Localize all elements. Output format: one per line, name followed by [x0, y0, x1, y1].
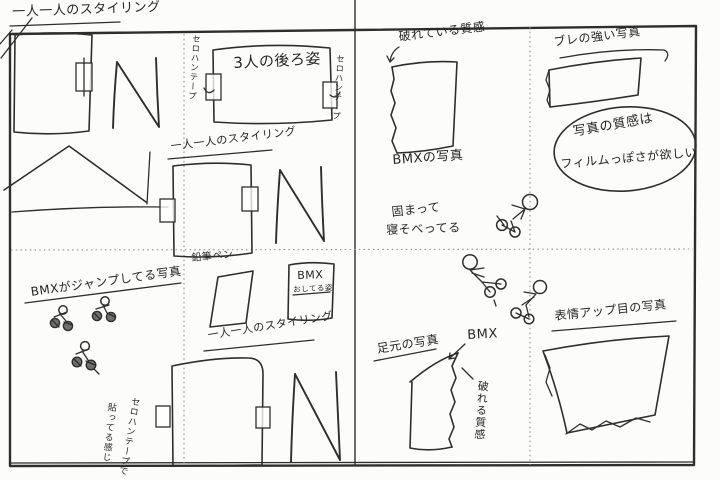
tape-mark: [242, 187, 258, 211]
tape-mark: [156, 406, 170, 427]
quadrant-top-left: [0, 18, 168, 212]
face-caption-underline: [552, 321, 676, 331]
bmx-pose-title: BMX: [297, 269, 324, 283]
quadrant-top-right: [387, 47, 457, 153]
fold-guide-horizontal: [11, 249, 693, 250]
tape-mark: [160, 199, 175, 222]
bmx-pointer-label: BMX: [467, 327, 498, 344]
letter-n-sketch-1: [113, 58, 159, 128]
blur-caption-underline: [560, 50, 668, 61]
letter-n-sketch-3: [291, 372, 340, 462]
quadrant-mid-center: [160, 150, 334, 327]
spread-frame: [10, 0, 696, 466]
stick-figure-bmx-dense: [50, 306, 72, 331]
tape-mark: [76, 58, 92, 96]
tape-mark: [256, 407, 270, 428]
photo-box-hatched-2: [173, 163, 252, 257]
photo-box-blur: [546, 58, 641, 107]
stick-figure-bmx-dense: [92, 297, 115, 322]
photo-box-bmx-torn: [391, 62, 457, 153]
tape-mark: [204, 74, 221, 100]
stick-figure-bmx-open: [511, 281, 547, 324]
stick-figure-bmx-open: [463, 255, 506, 306]
huddle-note-line2: 寝そべってる: [386, 221, 461, 237]
arrow-to-torn-texture: [462, 368, 473, 379]
stick-figure-bmx-open: [497, 195, 538, 238]
mountain-triangle-sketch: [4, 146, 168, 212]
corner-strike-lines: [0, 18, 32, 58]
letter-n-sketch-2: [276, 167, 324, 243]
photo-box-feet-torn: [374, 349, 473, 450]
photo-box-hatched-3: [172, 358, 263, 466]
styling-underline-bottom: [204, 340, 314, 351]
arrow-to-torn-edge: [387, 47, 399, 62]
photo-box-small: [210, 271, 253, 327]
quadrant-far-right: [543, 50, 699, 434]
stick-figure-bmx-dense: [72, 342, 99, 374]
photo-box-face-closeup: [543, 336, 669, 434]
sketch-page: 一人一人のスタイリング 3人の後ろ姿 セロハンテープ セロハンテープ 一人一人の…: [0, 0, 720, 480]
